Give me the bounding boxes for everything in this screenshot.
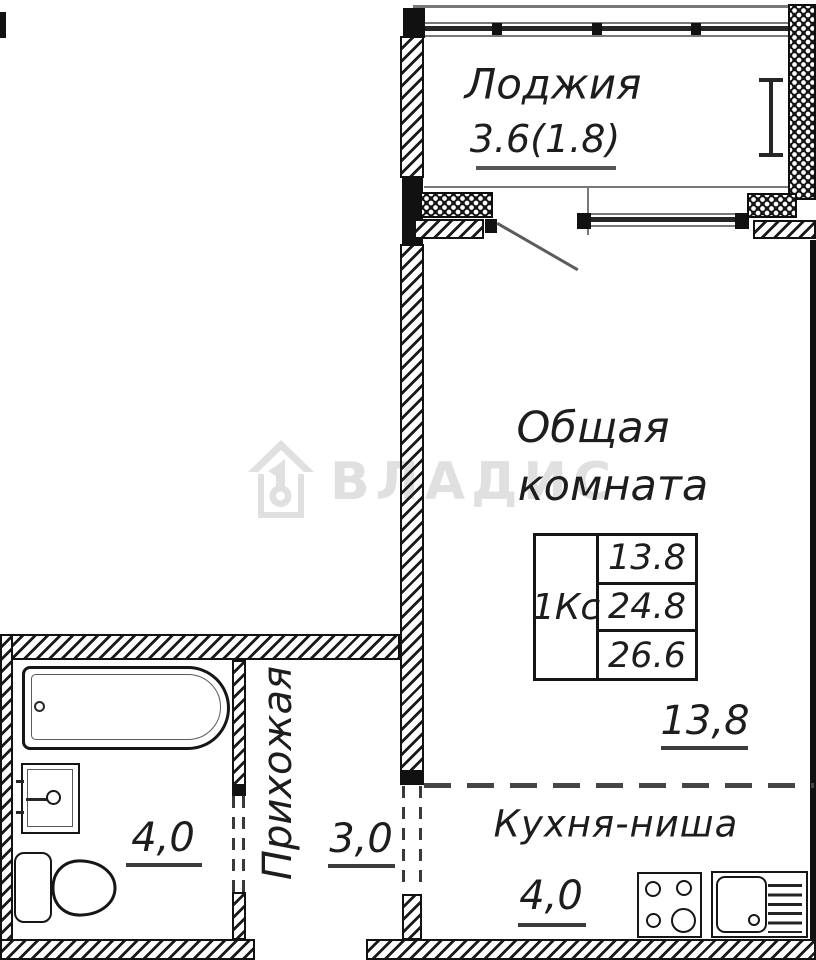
- area-values-column: 13.8 24.8 26.6: [599, 536, 695, 678]
- loggia-area: 3.6(1.8): [470, 117, 621, 161]
- toilet-bowl: [48, 855, 120, 921]
- dimension-underline: [328, 864, 395, 868]
- hall-kitchen-opening-dashed: [402, 786, 405, 888]
- stove: [637, 872, 702, 938]
- bathtub-drain: [34, 701, 45, 712]
- stove-burner: [671, 908, 696, 933]
- column-symbol-cap: [759, 153, 783, 157]
- hallway-label: Прихожая: [255, 666, 301, 880]
- total-area-value: 24.8: [599, 582, 695, 632]
- bathroom-dim: 4,0: [131, 815, 195, 861]
- window-end-cap: [577, 213, 591, 229]
- bottom-outer-wall: [0, 939, 255, 960]
- bottom-outer-wall: [366, 939, 816, 960]
- washbasin: [21, 763, 80, 834]
- living-area-value: 13.8: [599, 536, 695, 580]
- loggia-left-wall: [400, 36, 424, 178]
- kitchen-dim: 4,0: [519, 873, 583, 919]
- stove-burner: [645, 881, 661, 897]
- living-room-dim: 13,8: [660, 698, 749, 744]
- balcony-door-swing: [497, 222, 579, 271]
- window-glass: [591, 217, 736, 222]
- stove-burner: [646, 913, 661, 928]
- house-keyhole-icon: [246, 436, 316, 522]
- wall-stub: [232, 892, 246, 940]
- loggia-window-frame: [424, 35, 788, 37]
- window-mullion: [492, 23, 502, 35]
- room-right-wall: [810, 240, 816, 940]
- kitchen-sink-drain: [748, 914, 760, 926]
- door-jamb: [485, 219, 497, 233]
- kitchen-sink-basin: [716, 876, 767, 933]
- window-frame: [591, 213, 736, 215]
- bathroom-door-opening-dashed: [242, 796, 245, 894]
- kitchen-label: Кухня-ниша: [494, 803, 739, 846]
- window-mullion: [592, 23, 602, 35]
- wall-stub: [402, 894, 422, 940]
- partition-wall-checkered-right: [747, 193, 797, 218]
- area-stamp-table: 1Кс 13.8 24.8 26.6: [533, 533, 698, 681]
- dimension-underline: [661, 746, 748, 750]
- edge-wall-stub: [0, 12, 6, 38]
- dimension-underline: [126, 863, 202, 867]
- bathroom-door-opening-dashed: [232, 796, 235, 894]
- washbasin-tap-tick: [16, 811, 24, 814]
- loggia-window-glass: [424, 26, 788, 31]
- loggia-window-frame: [424, 22, 788, 24]
- loggia-label: Лоджия: [465, 60, 642, 109]
- room-left-wall: [400, 244, 424, 772]
- washbasin-faucet: [46, 790, 61, 805]
- loggia-floor-line: [424, 186, 788, 188]
- stove-burner: [676, 880, 692, 896]
- wall-end-cap: [232, 784, 246, 796]
- toilet-tank: [14, 852, 52, 923]
- kitchen-sink-drainboard: [768, 884, 802, 933]
- living-room-label-line1: Общая: [516, 403, 669, 453]
- left-outer-wall: [0, 634, 13, 960]
- window-mullion: [691, 23, 701, 35]
- hallway-dim: 3,0: [329, 816, 393, 862]
- living-room-label-line2: комната: [518, 461, 709, 511]
- window-frame: [591, 225, 736, 227]
- hall-kitchen-opening-dashed: [419, 786, 422, 888]
- floor-plan: Лоджия 3.6(1.8) Общая комната 13,8 Кухня…: [0, 0, 816, 960]
- dimension-underline: [518, 923, 586, 927]
- bath-hall-divider-wall: [232, 660, 246, 786]
- bathroom-top-wall: [10, 634, 400, 660]
- loggia-right-wall: [788, 4, 816, 200]
- wall-corner-block: [403, 8, 425, 38]
- partition-wall-hatched-right: [753, 220, 816, 239]
- kitchen-niche-boundary-dashed: [424, 783, 814, 788]
- washbasin-tap-tick: [16, 780, 24, 783]
- bathtub: [22, 666, 230, 750]
- total-with-loggia-value: 26.6: [599, 634, 695, 678]
- column-symbol-stem: [769, 81, 773, 154]
- apartment-type-cell: 1Кс: [536, 536, 599, 678]
- partition-wall-hatched-left: [414, 219, 484, 239]
- partition-wall-checkered-left: [420, 192, 493, 218]
- dimension-underline: [476, 166, 616, 170]
- loggia-outer-wall-line: [413, 5, 793, 8]
- bathtub-inner-line: [31, 674, 221, 740]
- wall-end-cap: [400, 771, 424, 785]
